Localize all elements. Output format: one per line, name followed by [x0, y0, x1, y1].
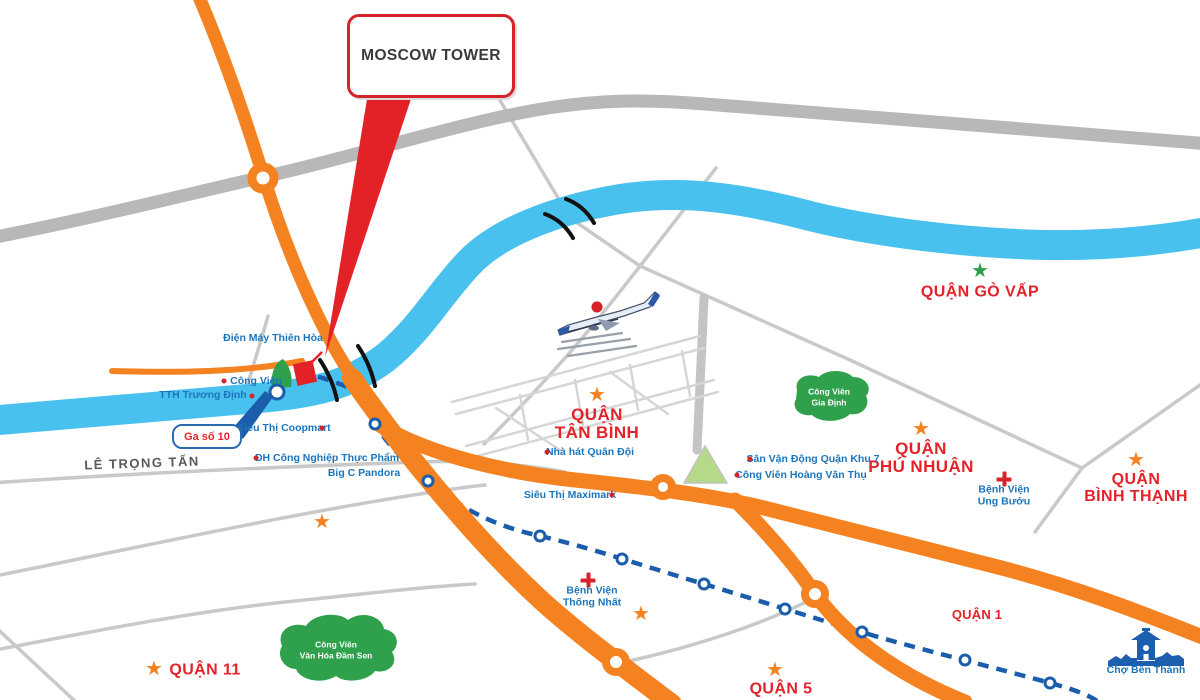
- poi-bullet-icon: [320, 426, 325, 431]
- landmark-label-big-c-pandora: Big C Pandora: [328, 467, 400, 479]
- moscow-tower-callout: MOSCOW TOWER: [347, 14, 515, 98]
- metro-station-icon: [1044, 677, 1057, 690]
- poi-bullet-icon: [592, 302, 603, 313]
- metro-station-icon: [534, 530, 547, 543]
- star-icon: ★: [1127, 450, 1145, 470]
- metro-station-icon: [959, 654, 972, 667]
- poi-bullet-icon: [735, 473, 740, 478]
- district-label-go-vap: QUẬN GÒ VẤP: [921, 285, 1039, 302]
- star-icon: ★: [588, 385, 606, 405]
- landmark-label-benh-vien-thong-nhat: Bệnh ViệnThống Nhất: [563, 585, 621, 610]
- district-label-phu-nhuan: QUẬNPHÚ NHUẬN: [868, 440, 974, 476]
- landmark-label-sieu-thi-coopmart: Siêu Thị Coopmart: [237, 422, 330, 434]
- metro-station-icon: [369, 418, 382, 431]
- landmark-label-cong-vien-hoang-van-thu: Công Viên Hoàng Văn Thụ: [735, 469, 867, 481]
- metro-station-icon: [269, 384, 286, 401]
- metro-station-icon: [616, 553, 629, 566]
- landmark-label-dien-may-thien-hoa: Điện Máy Thiên Hòa: [223, 332, 323, 344]
- district-label-tan-binh: QUẬNTÂN BÌNH: [555, 406, 639, 442]
- poi-bullet-icon: [254, 456, 259, 461]
- ga-so-10-label: Ga số 10: [184, 431, 230, 443]
- park-label-cong-vien-van-hoa-dam-sen: Công ViênVăn Hóa Đầm Sen: [300, 639, 373, 660]
- landmark-label-san-van-dong-quan-khu-7: Sân Vận Động Quận Khu 7: [746, 453, 879, 465]
- district-label-quan-1: QUẬN 1: [952, 608, 1002, 622]
- star-icon: ★: [632, 604, 650, 624]
- poi-bullet-icon: [748, 457, 753, 462]
- metro-station-icon: [856, 626, 869, 639]
- landmark-label-sieu-thi-maximark: Siêu Thị Maximark: [524, 489, 616, 501]
- metro-station-icon: [422, 475, 435, 488]
- star-icon: ★: [313, 512, 331, 532]
- labels-layer: QUẬN GÒ VẤPQUẬNTÂN BÌNHQUẬNPHÚ NHUẬNQUẬN…: [0, 0, 1200, 700]
- poi-bullet-icon: [545, 450, 550, 455]
- star-icon: ★: [766, 660, 784, 680]
- hospital-cross-icon: [581, 573, 596, 588]
- district-label-binh-thanh: QUẬNBÌNH THẠNH: [1084, 472, 1188, 506]
- poi-bullet-icon: [222, 379, 227, 384]
- park-label-cong-vien-gia-dinh: Công ViênGia Định: [808, 386, 850, 407]
- landmark-label-tth-truong-dinh: TTH Trương Định: [159, 389, 246, 401]
- hospital-cross-icon: [997, 472, 1012, 487]
- landmark-label-dh-cong-nghiep-thuc-pham: ĐH Công Nghiệp Thực Phẩm: [255, 452, 399, 464]
- district-label-quan-11: QUẬN 11: [169, 663, 240, 680]
- metro-station-icon: [698, 578, 711, 591]
- map-canvas: QUẬN GÒ VẤPQUẬNTÂN BÌNHQUẬNPHÚ NHUẬNQUẬN…: [0, 0, 1200, 700]
- star-icon: ★: [971, 261, 989, 281]
- star-icon: ★: [145, 659, 163, 679]
- metro-station-icon: [779, 603, 792, 616]
- landmark-label-nha-hat-quan-doi: Nhà hát Quân Đội: [546, 446, 634, 458]
- ga-so-10-callout: Ga số 10: [172, 424, 242, 449]
- ben-thanh-market-icon: [1106, 628, 1186, 670]
- poi-bullet-icon: [610, 493, 615, 498]
- district-label-quan-5: QUẬN 5: [750, 682, 813, 699]
- moscow-tower-label: MOSCOW TOWER: [361, 47, 501, 65]
- star-icon: ★: [912, 419, 930, 439]
- poi-bullet-icon: [250, 394, 255, 399]
- landmark-label-benh-vien-ung-buou: Bệnh ViệnUng Bướu: [978, 484, 1030, 509]
